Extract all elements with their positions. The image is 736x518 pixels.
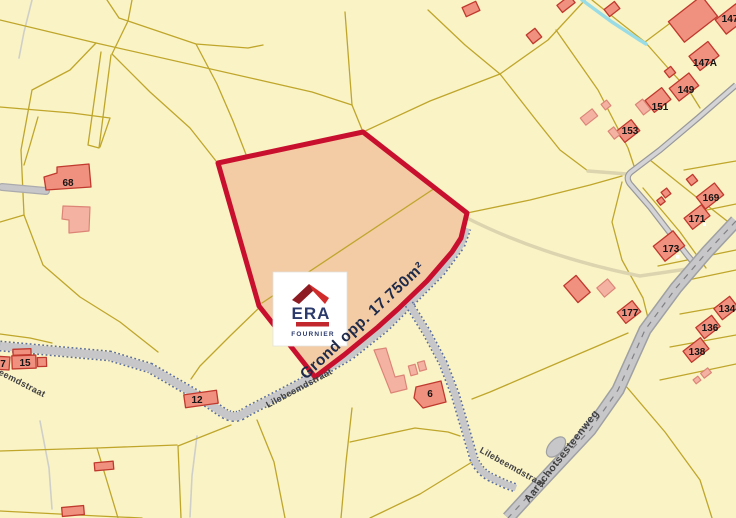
building	[62, 506, 85, 517]
house-number-173: 173	[663, 244, 680, 255]
house-number-138: 138	[689, 347, 706, 358]
house-number-169: 169	[703, 193, 720, 204]
house-number-147: 147	[722, 14, 736, 25]
house-number-151: 151	[652, 102, 669, 113]
era-brand-text: ERA	[292, 304, 331, 323]
house-number-153: 153	[622, 126, 639, 137]
building-annex-15	[13, 349, 31, 356]
building	[94, 461, 114, 471]
house-number-171: 171	[689, 214, 706, 225]
era-subtitle-text: FOURNIER	[291, 331, 335, 338]
house-number-149: 149	[678, 85, 695, 96]
house-number-68: 68	[62, 178, 74, 189]
house-number-177: 177	[622, 308, 639, 319]
house-number-134: 134	[719, 304, 736, 315]
house-number-15: 15	[19, 358, 31, 369]
era-red-bar	[296, 322, 329, 327]
map-canvas[interactable]: ERA FOURNIER Lilebeemdstraat Lilebeemdst…	[0, 0, 736, 518]
house-number-136: 136	[702, 323, 719, 334]
house-number-6: 6	[427, 389, 433, 400]
cadastral-map: ERA FOURNIER Lilebeemdstraat Lilebeemdst…	[0, 0, 736, 518]
house-number-147a: 147A	[693, 58, 717, 69]
building-annex	[676, 255, 680, 259]
house-number-7: 7	[0, 359, 6, 370]
house-number-12: 12	[191, 395, 203, 406]
building	[37, 357, 46, 366]
building	[417, 361, 426, 372]
